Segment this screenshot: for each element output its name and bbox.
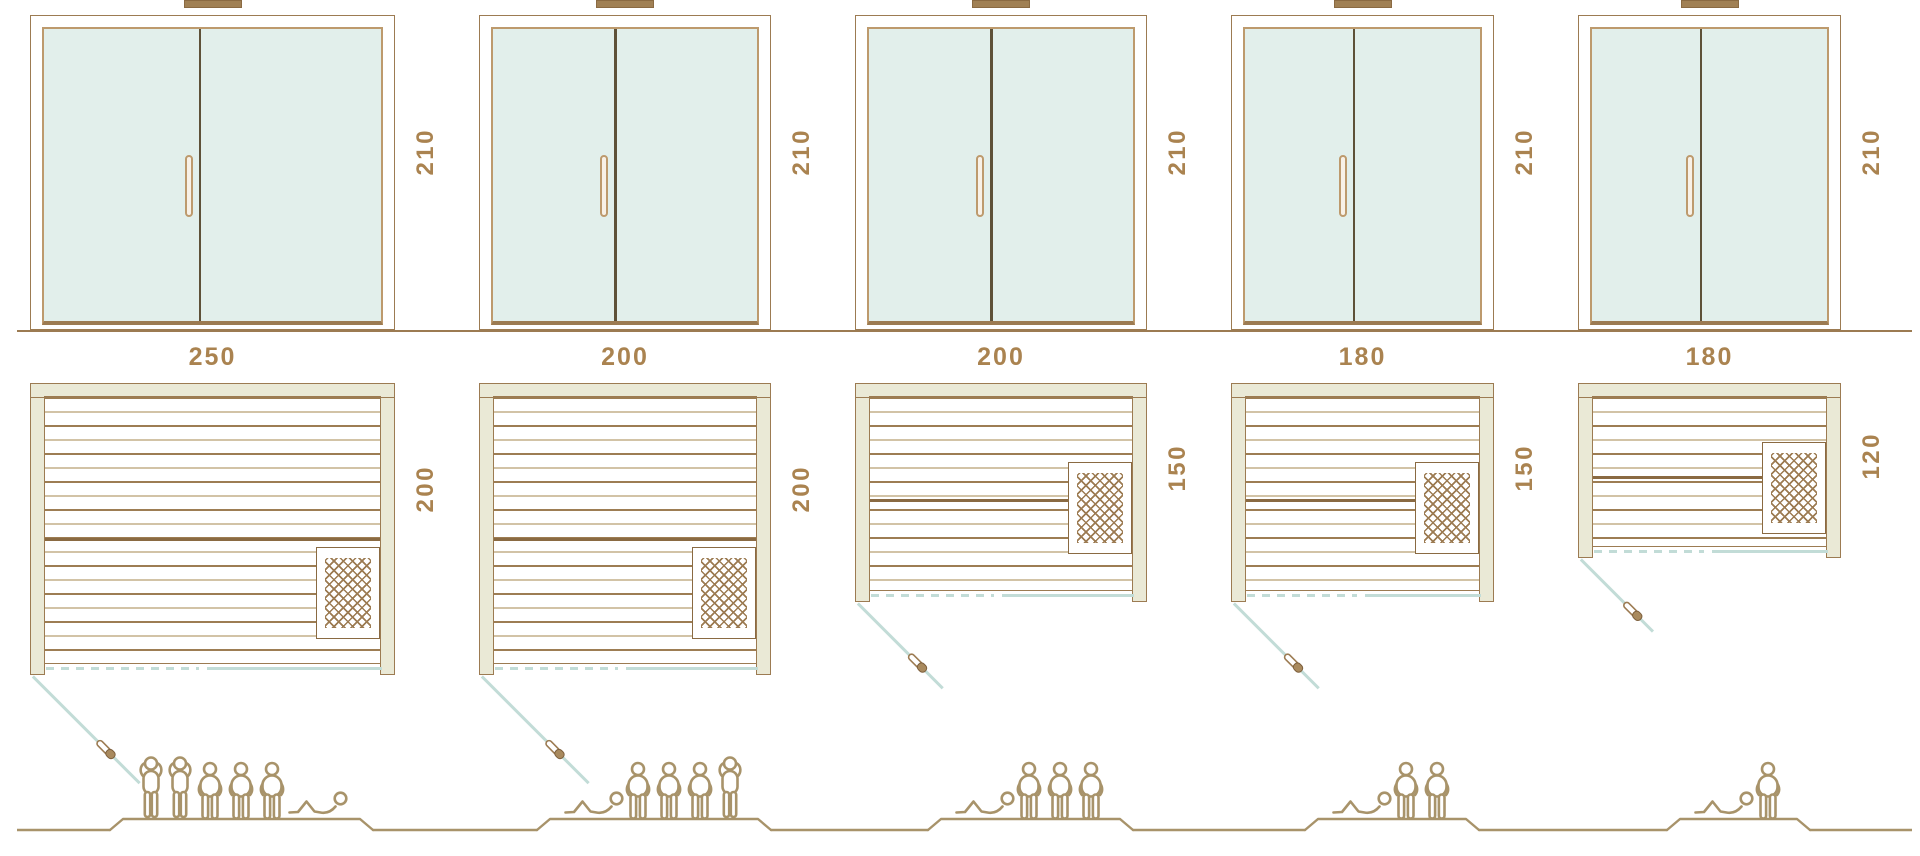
glass-panels	[491, 27, 759, 325]
heater-icon	[1415, 462, 1479, 554]
glass-panels	[1590, 27, 1829, 325]
ground-line	[466, 330, 842, 332]
wall-band	[1132, 383, 1147, 602]
wall-band	[380, 383, 395, 675]
depth-dimension-label: 150	[1511, 444, 1539, 492]
heater-stones	[1077, 473, 1123, 543]
door-handle	[185, 155, 193, 217]
door-elevation: 210	[479, 0, 829, 332]
door-handle	[976, 155, 984, 217]
depth-dimension-label: 150	[1164, 444, 1192, 492]
glass-double-door	[479, 15, 771, 330]
plan-area: 200	[479, 383, 829, 675]
floor-plan	[1231, 383, 1494, 602]
depth-dimension-label: 200	[412, 465, 440, 513]
door-swing-line	[1580, 558, 1654, 632]
door-swing-line	[857, 602, 944, 689]
glass-wall-line	[207, 667, 382, 670]
roof-vent-cap-icon	[972, 0, 1030, 8]
bench-planks	[1245, 396, 1480, 591]
heater-icon	[692, 547, 756, 639]
sauna-size-diagram: 210 250	[0, 0, 1920, 856]
wall-band	[479, 383, 494, 675]
glass-double-door	[855, 15, 1147, 330]
heater-stones	[701, 558, 747, 628]
door-divider-line	[614, 29, 616, 321]
glass-panels	[42, 27, 383, 325]
door-elevation: 210	[1578, 0, 1899, 332]
heater-icon	[1762, 442, 1826, 534]
bench-planks	[1592, 396, 1827, 547]
door-divider-line	[990, 29, 992, 321]
floor-plan	[479, 383, 771, 675]
glass-double-door	[30, 15, 395, 330]
sauna-column-180x150: 210 180	[1231, 0, 1552, 856]
roof-vent-cap-icon	[596, 0, 654, 8]
door-elevation: 210	[1231, 0, 1552, 332]
glass-double-door	[1578, 15, 1841, 330]
wall-band	[1479, 383, 1494, 602]
door-opening-dashed-line	[495, 667, 618, 670]
depth-dimension-label: 200	[788, 465, 816, 513]
ground-line	[1218, 330, 1565, 332]
sauna-column-200x150: 210 200	[855, 0, 1205, 856]
bench-planks	[493, 396, 757, 664]
plan-area: 120	[1578, 383, 1899, 558]
door-handle-icon	[1618, 596, 1649, 627]
width-dimension-label: 180	[1578, 332, 1841, 383]
plan-area: 150	[855, 383, 1205, 602]
ground-line	[1565, 330, 1912, 332]
glass-panels	[867, 27, 1135, 325]
heater-stones	[1424, 473, 1470, 543]
height-dimension-label: 210	[412, 128, 440, 176]
roof-vent-cap-icon	[184, 0, 242, 8]
wall-band	[855, 383, 870, 602]
heater-icon	[1068, 462, 1132, 554]
wall-band	[1231, 383, 1246, 602]
width-dimension-label: 200	[855, 332, 1147, 383]
wall-band	[1578, 383, 1593, 558]
capacity-figures	[466, 744, 842, 856]
plan-area: 200	[30, 383, 453, 675]
door-opening-dashed-line	[1247, 594, 1357, 597]
wall-band	[30, 383, 45, 675]
door-handle	[1686, 155, 1694, 217]
roof-vent-cap-icon	[1681, 0, 1739, 8]
capacity-figures	[1218, 744, 1565, 856]
height-dimension-label: 210	[788, 128, 816, 176]
bench-planks	[869, 396, 1133, 591]
door-divider-line	[1353, 29, 1355, 321]
door-elevation: 210	[30, 0, 453, 332]
glass-wall-line	[1002, 594, 1134, 597]
heater-stones	[325, 558, 371, 628]
glass-panels	[1243, 27, 1482, 325]
glass-double-door	[1231, 15, 1494, 330]
wall-band	[1826, 383, 1841, 558]
sauna-column-250x200: 210 250	[30, 0, 453, 856]
heater-icon	[316, 547, 380, 639]
door-divider-line	[1700, 29, 1702, 321]
door-opening-dashed-line	[871, 594, 994, 597]
door-opening-dashed-line	[1594, 550, 1704, 553]
glass-wall-line	[1712, 550, 1828, 553]
width-dimension-label: 180	[1231, 332, 1494, 383]
height-dimension-label: 210	[1858, 128, 1886, 176]
door-handle	[600, 155, 608, 217]
sauna-column-180x120: 210 180	[1578, 0, 1899, 856]
door-swing-line	[1233, 602, 1320, 689]
roof-vent-cap-icon	[1334, 0, 1392, 8]
width-dimension-label: 200	[479, 332, 771, 383]
capacity-figures	[1565, 744, 1912, 856]
door-handle-icon	[903, 648, 934, 679]
height-dimension-label: 210	[1164, 128, 1192, 176]
ground-line	[17, 330, 466, 332]
plan-area: 150	[1231, 383, 1552, 602]
floor-plan	[855, 383, 1147, 602]
width-dimension-label: 250	[30, 332, 395, 383]
bench-front-edge	[45, 538, 380, 541]
door-opening-dashed-line	[46, 667, 199, 670]
door-divider-line	[199, 29, 201, 321]
capacity-figures	[842, 744, 1218, 856]
bench-planks	[44, 396, 381, 664]
floor-plan	[1578, 383, 1841, 558]
height-dimension-label: 210	[1511, 128, 1539, 176]
bench-front-edge	[494, 538, 756, 541]
capacity-figures	[17, 744, 466, 856]
glass-wall-line	[626, 667, 758, 670]
depth-dimension-label: 120	[1858, 432, 1886, 480]
floor-plan	[30, 383, 395, 675]
ground-line	[842, 330, 1218, 332]
door-elevation: 210	[855, 0, 1205, 332]
glass-wall-line	[1365, 594, 1481, 597]
wall-band	[756, 383, 771, 675]
sauna-column-200x200: 210 200	[479, 0, 829, 856]
door-handle	[1339, 155, 1347, 217]
heater-stones	[1771, 453, 1817, 523]
door-handle-icon	[1279, 648, 1310, 679]
